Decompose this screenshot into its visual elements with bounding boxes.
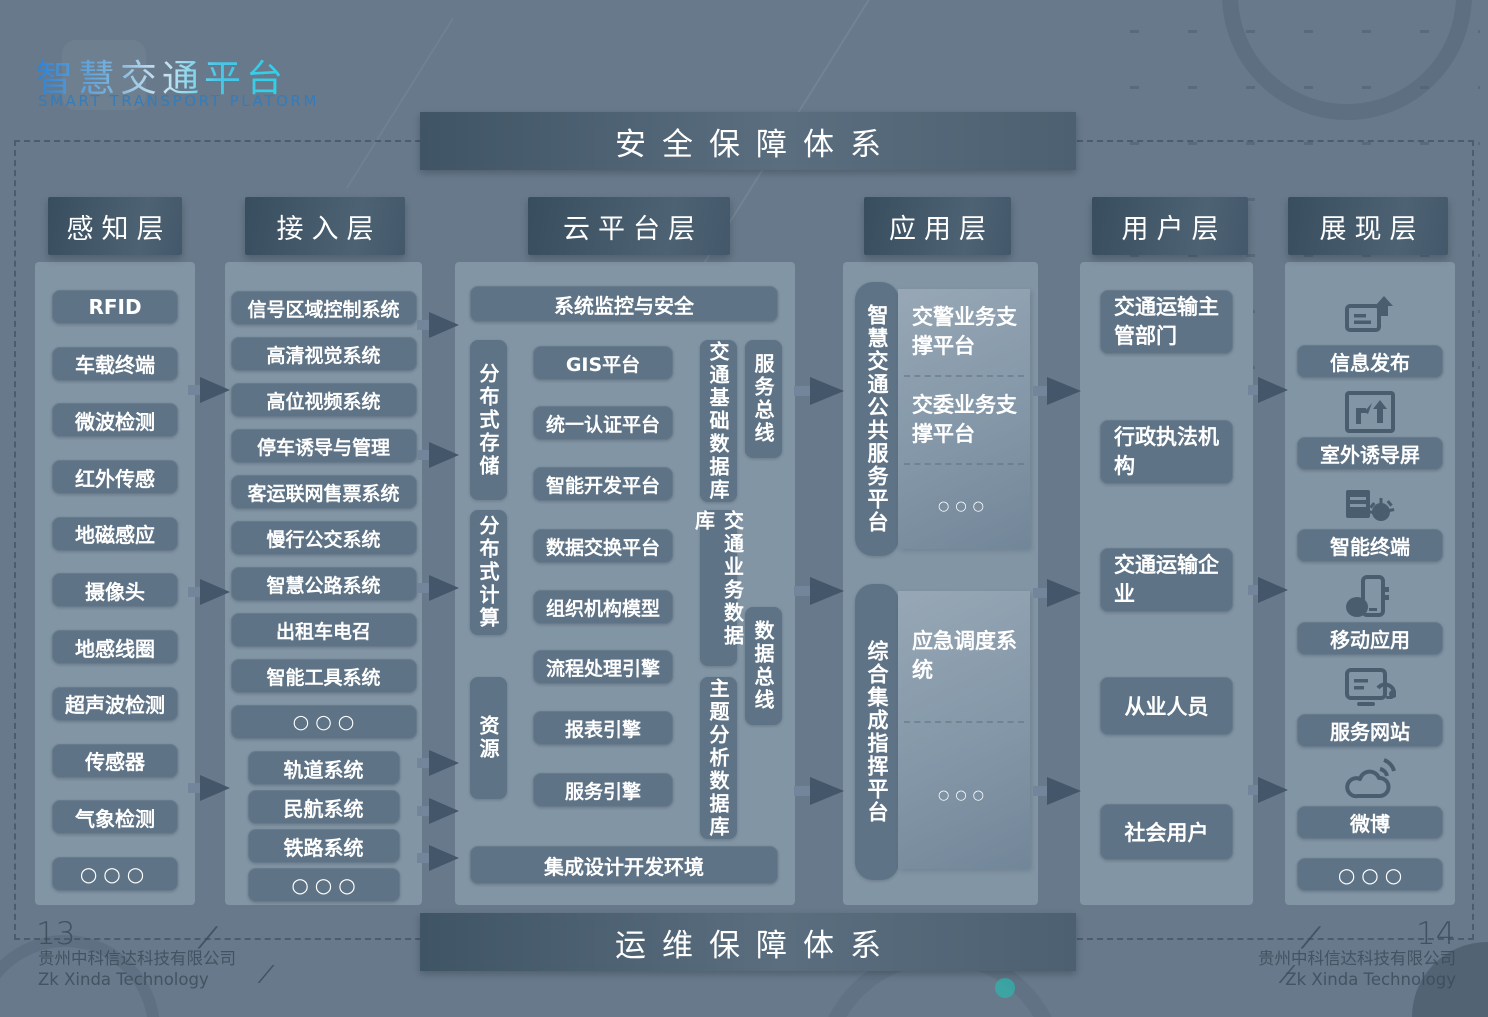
header-cloud-platform-layer: 云平台层 [528, 197, 730, 255]
presentation-item: 室外诱导屏 [1297, 437, 1443, 470]
mobile-app-icon [1285, 575, 1455, 621]
basic-database-pill: 交通基础数据库 [700, 340, 737, 502]
panel-perception-layer: RFID 车载终端 微波检测 红外传感 地磁感应 摄像头 地感线圈 超声波检测 … [35, 262, 195, 905]
background-circle-top-right [1222, 0, 1472, 120]
business-database-pill: 交通业务数据库 [700, 510, 737, 666]
user-item: 交通运输企业 [1100, 548, 1233, 612]
user-item: 社会用户 [1100, 804, 1233, 860]
flow-arrow [417, 843, 459, 873]
publish-icon [1285, 294, 1455, 338]
presentation-item: 信息发布 [1297, 345, 1443, 378]
distributed-computing-pill: 分布式计算 [470, 510, 507, 635]
perception-item: 超声波检测 [52, 687, 178, 721]
cloud-item: 智能开发平台 [533, 467, 673, 501]
flow-arrow [1033, 577, 1081, 609]
access-item: 停车诱导与管理 [231, 429, 417, 463]
flow-arrow [1033, 775, 1081, 807]
guidance-screen-icon [1285, 390, 1455, 434]
integrated-command-platform-panel: 应急调度系统 ○○○ [898, 591, 1030, 869]
flow-arrow [417, 440, 459, 470]
service-website-icon [1285, 666, 1455, 712]
perception-item: RFID [52, 290, 178, 324]
teal-dot-decoration [995, 978, 1015, 998]
company-footer-left: 贵州中科信达科技有限公司 Zk Xinda Technology [38, 948, 236, 991]
presentation-item: 服务网站 [1297, 714, 1443, 747]
application-item: 交委业务支撑平台 [898, 377, 1030, 463]
perception-item: 摄像头 [52, 573, 178, 607]
flow-arrow [417, 310, 459, 340]
cloud-item: GIS平台 [533, 346, 673, 380]
flow-arrow [1248, 775, 1288, 805]
perception-more-ellipsis: ○○○ [52, 857, 178, 891]
application-more-ellipsis: ○○○ [898, 723, 1030, 869]
data-bus-pill: 数据总线 [745, 607, 782, 725]
perception-item: 地磁感应 [52, 517, 178, 551]
presentation-more-ellipsis: ○○○ [1297, 858, 1443, 891]
security-assurance-banner: 安全保障体系 [420, 112, 1076, 170]
user-item: 从业人员 [1100, 677, 1233, 735]
flow-arrow [1033, 375, 1081, 407]
header-presentation-layer: 展现层 [1288, 197, 1448, 255]
header-access-layer: 接入层 [245, 197, 405, 255]
weibo-icon [1285, 756, 1455, 802]
flow-arrow [188, 375, 230, 405]
header-application-layer: 应用层 [864, 197, 1011, 255]
presentation-item: 移动应用 [1297, 622, 1443, 655]
perception-item: 地感线圈 [52, 630, 178, 664]
access-item: 高清视觉系统 [231, 337, 417, 371]
cloud-item: 流程处理引擎 [533, 650, 673, 684]
panel-presentation-layer: 信息发布 室外诱导屏 智能终端 [1285, 262, 1455, 905]
integrated-command-platform-pill: 综合集成指挥平台 [855, 584, 899, 880]
system-monitoring-security-bar: 系统监控与安全 [470, 286, 778, 322]
resources-pill: 资源 [470, 677, 507, 799]
access-item: 慢行公交系统 [231, 521, 417, 555]
cloud-item: 统一认证平台 [533, 406, 673, 440]
access-more-ellipsis: ○○○ [231, 705, 417, 739]
user-item: 交通运输主管部门 [1100, 290, 1233, 354]
smart-terminal-icon [1285, 484, 1455, 528]
access-item: 高位视频系统 [231, 383, 417, 417]
flow-arrow [794, 575, 844, 607]
cloud-item: 报表引擎 [533, 711, 673, 745]
flow-arrow [417, 748, 459, 778]
access-external-systems-group: 轨道系统 民航系统 铁路系统 ○○○ [248, 751, 400, 902]
page-number-left: 13 [36, 916, 75, 952]
integrated-dev-environment-bar: 集成设计开发环境 [470, 846, 778, 884]
access-sub-item: 民航系统 [248, 790, 400, 824]
access-item: 智能工具系统 [231, 659, 417, 693]
flow-arrow [188, 773, 230, 803]
panel-user-layer: 交通运输主管部门 行政执法机构 交通运输企业 从业人员 社会用户 [1080, 262, 1253, 905]
footer-slash: / [258, 962, 274, 987]
header-perception-layer: 感知层 [48, 197, 182, 255]
presentation-item: 智能终端 [1297, 529, 1443, 562]
access-sub-more-ellipsis: ○○○ [248, 868, 400, 902]
company-name-cn: 贵州中科信达科技有限公司 [38, 948, 236, 969]
access-sub-item: 铁路系统 [248, 829, 400, 863]
company-name-en: Zk Xinda Technology [38, 969, 236, 990]
flow-arrow [1248, 575, 1288, 605]
perception-item: 气象检测 [52, 800, 178, 834]
user-item: 行政执法机构 [1100, 420, 1233, 484]
flow-arrow [417, 573, 459, 603]
access-item: 信号区域控制系统 [231, 291, 417, 325]
perception-item: 传感器 [52, 744, 178, 778]
perception-item: 红外传感 [52, 460, 178, 494]
service-bus-pill: 服务总线 [745, 340, 782, 458]
presentation-item: 微博 [1297, 806, 1443, 839]
flow-arrow [794, 375, 844, 407]
panel-access-layer: 信号区域控制系统 高清视觉系统 高位视频系统 停车诱导与管理 客运联网售票系统 … [225, 262, 422, 905]
access-sub-item: 轨道系统 [248, 751, 400, 785]
panel-application-layer: 智慧交通公共服务平台 交警业务支撑平台 交委业务支撑平台 ○○○ 综合集成指挥平… [843, 262, 1038, 905]
access-item: 客运联网售票系统 [231, 475, 417, 509]
page-number-right: 14 [1416, 916, 1455, 952]
access-item: 智慧公路系统 [231, 567, 417, 601]
topic-database-pill: 主题分析数据库 [700, 677, 737, 839]
cloud-item: 数据交换平台 [533, 529, 673, 563]
flow-arrow [1248, 375, 1288, 405]
perception-item: 车载终端 [52, 347, 178, 381]
platform-logo-subtitle: SMART TRANSPORT PLATORM [38, 92, 319, 110]
flow-arrow [794, 775, 844, 807]
distributed-storage-pill: 分布式存储 [470, 340, 507, 500]
operations-assurance-banner: 运维保障体系 [420, 913, 1076, 971]
slide-canvas: 智慧交通平台 SMART TRANSPORT PLATORM 安全保障体系 运维… [0, 0, 1488, 1017]
header-user-layer: 用户层 [1092, 197, 1248, 255]
panel-cloud-platform-layer: 系统监控与安全 分布式存储 分布式计算 资源 GIS平台 统一认证平台 智能开发… [455, 262, 795, 905]
application-item: 应急调度系统 [898, 591, 1030, 721]
application-more-ellipsis: ○○○ [898, 465, 1030, 549]
public-service-platform-pill: 智慧交通公共服务平台 [855, 282, 899, 556]
cloud-item: 组织机构模型 [533, 590, 673, 624]
access-item: 出租车电召 [231, 613, 417, 647]
application-item: 交警业务支撑平台 [898, 289, 1030, 375]
public-service-platform-panel: 交警业务支撑平台 交委业务支撑平台 ○○○ [898, 289, 1030, 549]
flow-arrow [188, 577, 230, 607]
flow-arrow [417, 796, 459, 826]
cloud-item: 服务引擎 [533, 773, 673, 807]
perception-item: 微波检测 [52, 403, 178, 437]
